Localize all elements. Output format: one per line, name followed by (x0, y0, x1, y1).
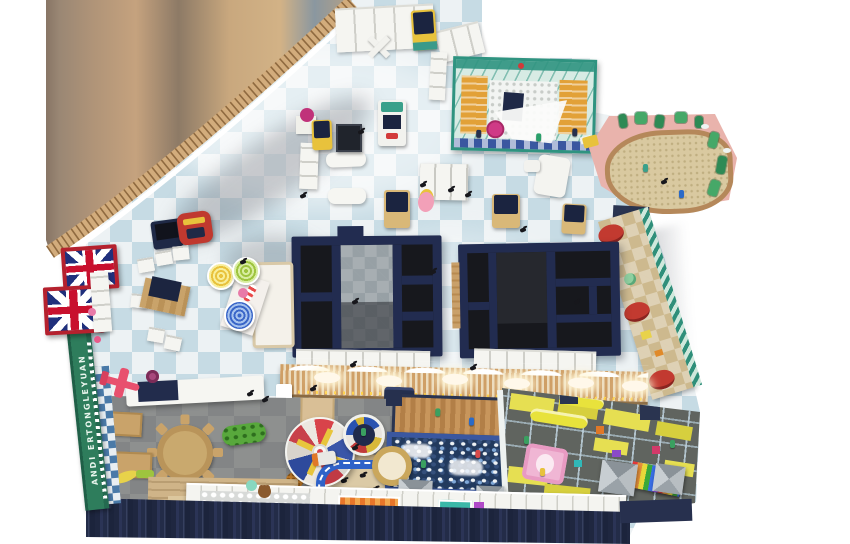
orange-sign (654, 349, 663, 357)
photo-kiosk (561, 203, 587, 234)
white-bench (155, 250, 173, 267)
claw-machine-top (381, 102, 403, 112)
kid-figure (475, 450, 480, 458)
lollipop-yellow (207, 262, 235, 290)
play-panel-yellow (655, 421, 693, 441)
machine-marquee (183, 217, 206, 226)
pink-toy (94, 336, 101, 343)
kid-figure (421, 460, 426, 468)
photo-kiosk (492, 194, 520, 228)
white-ball-pit-room (451, 56, 597, 154)
kid-figure (469, 417, 474, 425)
kid-figure (536, 133, 541, 141)
kid-figure (643, 164, 648, 172)
room2-wood-steps (451, 262, 460, 328)
white-ball-cluster (449, 459, 484, 476)
kiosk-screen (386, 192, 408, 213)
white-bench (164, 334, 183, 351)
cloud-light (568, 377, 594, 389)
room-wall (556, 314, 611, 323)
white-table (328, 188, 366, 204)
sand-play-area (583, 106, 743, 224)
pink-slide-pad (521, 443, 569, 486)
pyramid-canopy (652, 463, 686, 495)
room-wall (332, 245, 342, 348)
machine-screen (186, 227, 205, 239)
claw-machine-window (383, 115, 401, 129)
white-bench (147, 327, 165, 344)
kiosk-screen (564, 205, 585, 223)
facade-right-wedge (620, 499, 693, 523)
mint-ball (246, 480, 257, 491)
cloud-light (314, 372, 340, 384)
kid-figure (361, 428, 366, 436)
white-table (326, 151, 366, 167)
play-block (596, 426, 604, 434)
room2-center-cell (496, 252, 547, 324)
room1-door-tab (337, 226, 363, 238)
chair (181, 415, 190, 425)
cloud-light (376, 375, 402, 387)
room-wall (402, 275, 433, 284)
pink-slide-center (534, 453, 555, 476)
cloud-light (504, 378, 530, 390)
cloud-decal (723, 148, 731, 153)
kid-figure (476, 130, 481, 138)
room1-dark-patch (341, 302, 393, 348)
cloud-decal (701, 124, 709, 129)
room-wall (556, 278, 611, 287)
kid-figure (572, 128, 577, 136)
vending-kiosk (411, 9, 438, 51)
kiosk-base (413, 41, 437, 51)
arcade-screen-box (336, 124, 362, 152)
play-block (612, 450, 621, 457)
orange-wall-panel (460, 75, 488, 134)
cloud-light (622, 380, 648, 392)
candy-figure (238, 288, 248, 298)
yellow-sign (640, 330, 652, 341)
kiosk-screen (313, 121, 330, 138)
teddy-bear (258, 485, 271, 498)
playground-render: ANDI ERTONGLEYUAN (0, 0, 850, 544)
play-panel-yellow (593, 437, 629, 455)
play-block (652, 446, 660, 454)
room-wall (589, 286, 597, 314)
lollipop-blue (224, 300, 255, 331)
cactus-decor (654, 114, 665, 128)
claw-machine-sign (386, 133, 398, 139)
kid-figure (679, 190, 684, 198)
room-wall (468, 302, 489, 310)
photo-kiosk (384, 190, 410, 228)
play-block (574, 460, 582, 467)
cactus-decor (635, 112, 647, 124)
kid-figure (670, 440, 675, 448)
room-wall (546, 252, 557, 348)
pink-toy (88, 308, 96, 316)
party-room-2 (458, 242, 621, 359)
arcade-kiosk (311, 120, 332, 151)
purple-ring-toy (146, 370, 159, 383)
green-ball-figure (623, 272, 638, 287)
party-room-1 (291, 235, 442, 357)
kiosk-screen (155, 222, 179, 241)
red-game-machine (176, 210, 214, 246)
claw-machine (378, 100, 406, 146)
red-bumper (647, 367, 677, 393)
white-bench (137, 257, 155, 274)
cloud-light (442, 374, 468, 386)
kiosk-screen (494, 195, 518, 214)
pyramid-canopy (598, 460, 638, 497)
kid-figure (524, 436, 529, 444)
room-wall (402, 311, 433, 320)
small-stool (524, 160, 540, 172)
cactus-decor (675, 112, 687, 123)
room-wall (393, 245, 403, 348)
chair (213, 448, 223, 457)
kid-figure (540, 468, 545, 476)
kid-figure (435, 408, 440, 416)
deck-post (386, 390, 402, 406)
room-wall (488, 253, 498, 349)
locker-stack (429, 52, 447, 101)
room-wall (301, 292, 332, 301)
kiosk-screen (413, 11, 435, 34)
white-bench (172, 245, 189, 261)
